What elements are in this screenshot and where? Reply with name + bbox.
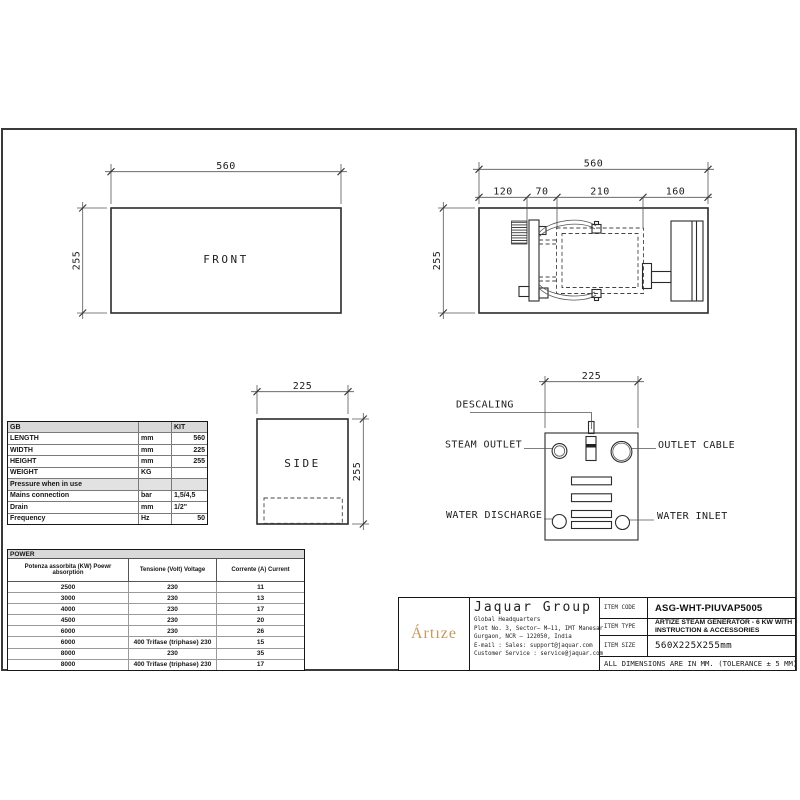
table-row: Mains connection bar 1,5/4,5: [8, 491, 207, 502]
table-row: Drain mm 1/2": [8, 502, 207, 513]
table-row: 3000 230 13: [8, 593, 304, 604]
company-name: Jaquar Group: [474, 600, 595, 615]
item-type-value: ARTIZE STEAM GENERATOR - 6 KW WITH INSTR…: [648, 618, 795, 635]
item-code-row: ITEM CODE ASG-WHT-PIUVAP5005: [600, 598, 795, 619]
power-table-title: POWER: [8, 550, 304, 559]
company-email: E-mail : Sales: support@jaquar.com: [474, 642, 595, 651]
table-row: WIDTH mm 225: [8, 445, 207, 456]
item-size-row: ITEM SIZE 560X225X255mm: [600, 635, 795, 657]
item-size-value: 560X225X255mm: [648, 635, 795, 656]
artize-logo: Ártıze: [411, 625, 457, 643]
spec-table-header: GB KIT: [8, 422, 207, 433]
table-row: Pressure when in use: [8, 479, 207, 490]
table-row: HEIGHT mm 255: [8, 456, 207, 467]
item-code-value: ASG-WHT-PIUVAP5005: [648, 598, 795, 618]
spec-header-gb: GB: [8, 422, 139, 432]
tolerance-note: ALL DIMENSIONS ARE IN MM. (TOLERANCE ± 5…: [600, 656, 795, 670]
company-address-2: Gurgaon, NCR – 122050, India: [474, 633, 595, 642]
power-table: POWER Potenza assorbita (KW) Poewr absor…: [7, 549, 305, 671]
table-row: LENGTH mm 560: [8, 433, 207, 444]
table-row: 6000 230 26: [8, 626, 304, 637]
table-row: WEIGHT KG: [8, 468, 207, 479]
table-row: 4000 230 17: [8, 604, 304, 615]
title-block: Ártıze Jaquar Group Global Headquarters …: [398, 597, 796, 671]
table-row: 8000 230 35: [8, 649, 304, 660]
company-address-1: Plot No. 3, Sector– M–11, IMT Manesar: [474, 625, 595, 634]
power-table-header: Potenza assorbita (KW) Poewr absorption …: [8, 559, 304, 582]
company-service: Customer Service : service@jaquar.com: [474, 650, 595, 659]
company-hq: Global Headquarters: [474, 616, 595, 625]
brand-logo: Ártıze: [399, 598, 470, 670]
table-row: 2500 230 11: [8, 582, 304, 593]
spec-header-unit: [139, 422, 172, 432]
table-row: Frequency Hz 50: [8, 514, 207, 524]
spec-header-kit: KIT: [172, 422, 207, 432]
table-row: 8000 400 Trifase (triphase) 230 17: [8, 660, 304, 670]
item-info: ITEM CODE ASG-WHT-PIUVAP5005 ITEM TYPE A…: [600, 598, 795, 670]
company-info: Jaquar Group Global Headquarters Plot No…: [470, 598, 600, 670]
item-type-row: ITEM TYPE ARTIZE STEAM GENERATOR - 6 KW …: [600, 618, 795, 636]
spec-table: GB KIT LENGTH mm 560 WIDTH mm 225 HEIGHT…: [7, 421, 208, 525]
table-row: 6000 400 Trifase (triphase) 230 15: [8, 637, 304, 648]
table-row: 4500 230 20: [8, 615, 304, 626]
